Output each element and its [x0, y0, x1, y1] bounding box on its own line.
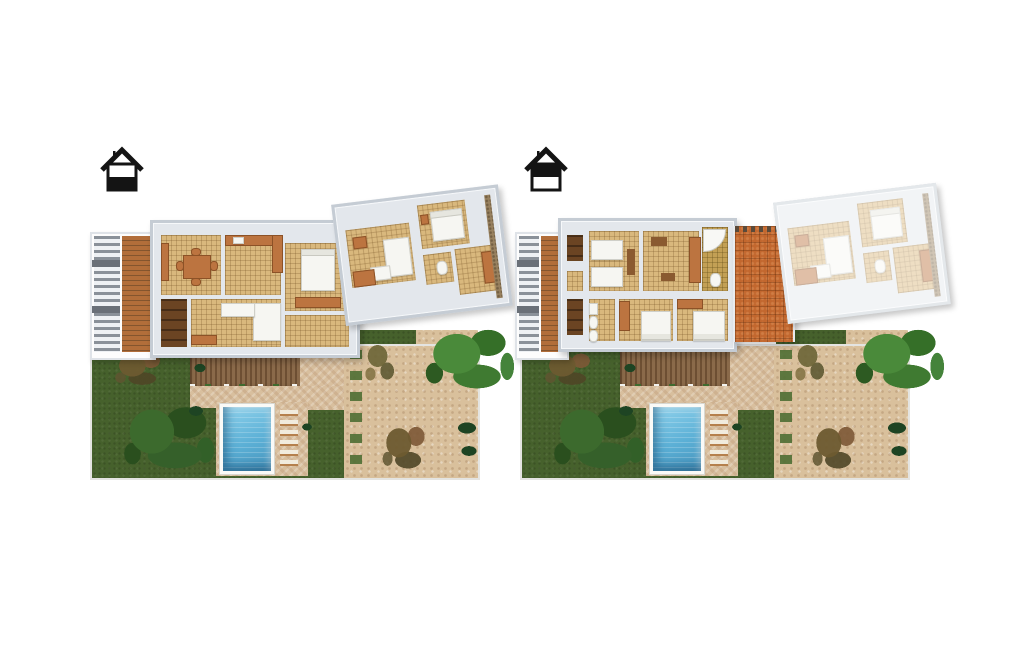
- floor-plan-canvas: [0, 0, 1024, 652]
- corner-bathtub: [703, 229, 726, 252]
- dining-room: [161, 235, 221, 295]
- toilet: [874, 259, 887, 274]
- pool-water: [223, 407, 271, 471]
- chair: [210, 261, 218, 271]
- pantry: [161, 299, 187, 347]
- armchair: [352, 236, 367, 250]
- closet: [567, 299, 583, 335]
- dining-table: [183, 255, 211, 279]
- bush: [186, 404, 206, 418]
- deck-planks: [122, 236, 150, 352]
- bush: [192, 362, 208, 374]
- pergola-beam: [92, 260, 120, 267]
- kitchen-counter: [272, 235, 283, 273]
- chair: [191, 278, 201, 286]
- chair: [191, 248, 201, 256]
- sink: [233, 237, 244, 244]
- single-bed: [591, 267, 623, 287]
- double-bedroom-2: [677, 299, 728, 341]
- bed-pillows: [302, 250, 334, 256]
- sun-loungers: [710, 410, 728, 468]
- shrub-row: [780, 350, 792, 468]
- pergola-slats: [519, 236, 539, 352]
- bush: [730, 422, 744, 432]
- pergola-beam: [517, 260, 539, 267]
- garden: [92, 346, 478, 478]
- main-building: [150, 220, 360, 358]
- pergola-beam: [92, 306, 120, 313]
- sun-loungers: [280, 410, 298, 468]
- swimming-pool: [220, 404, 274, 474]
- table: [794, 267, 818, 286]
- bed-pillows: [642, 334, 670, 340]
- kitchen: [225, 235, 281, 295]
- toilet: [589, 316, 598, 329]
- pergola-slats: [94, 236, 120, 352]
- double-bed: [870, 207, 903, 240]
- twin-bedroom: [589, 231, 639, 291]
- gravel-terrace: [774, 346, 908, 478]
- closet: [567, 235, 583, 261]
- bathroom-with-tub: [702, 227, 728, 291]
- double-bedroom-1: [619, 299, 673, 341]
- bathroom: [589, 299, 615, 341]
- bed-pillows: [694, 334, 724, 340]
- sideboard: [161, 243, 169, 281]
- single-bed: [591, 240, 623, 260]
- wardrobe: [677, 299, 703, 309]
- living-room: [191, 299, 281, 347]
- dark-bush: [888, 444, 910, 458]
- pergola-beam: [517, 306, 539, 313]
- sink: [589, 303, 598, 315]
- pergola-deck: [90, 232, 156, 360]
- double-bed: [641, 311, 671, 341]
- pool-water: [653, 407, 701, 471]
- dark-bush: [884, 420, 910, 436]
- landing: [567, 271, 583, 291]
- wing-bathroom: [863, 250, 892, 283]
- double-bed: [301, 249, 335, 291]
- house-first-floor-icon[interactable]: [524, 146, 568, 194]
- wardrobe: [689, 237, 701, 283]
- rug: [661, 273, 675, 281]
- table: [352, 269, 376, 288]
- shrub-row: [350, 350, 362, 468]
- chair: [176, 261, 184, 271]
- wing-lounge: [787, 221, 856, 286]
- hall: [285, 315, 349, 347]
- swimming-pool: [650, 404, 704, 474]
- rug: [627, 249, 635, 275]
- bush: [622, 362, 638, 374]
- rug: [651, 237, 667, 246]
- bush: [616, 404, 636, 418]
- sofa: [253, 303, 281, 341]
- bidet: [589, 330, 598, 342]
- wing-bedroom: [857, 198, 908, 247]
- tv-bench: [191, 335, 217, 345]
- bench: [295, 297, 341, 308]
- main-building: [558, 218, 737, 352]
- garden: [522, 346, 908, 478]
- wardrobe: [619, 301, 630, 331]
- armchair: [794, 234, 809, 248]
- double-bed: [693, 311, 725, 341]
- wing-lounge: [345, 223, 416, 288]
- first-floor-panel: [430, 0, 942, 652]
- ghosted-lower-wing: [773, 183, 951, 324]
- wardrobe-bedroom: [643, 231, 699, 291]
- sofa: [221, 303, 255, 317]
- house-ground-floor-icon[interactable]: [100, 146, 144, 194]
- toilet: [710, 273, 721, 287]
- bed-pillows: [871, 208, 900, 217]
- nightstand: [420, 214, 429, 225]
- bush: [300, 422, 314, 432]
